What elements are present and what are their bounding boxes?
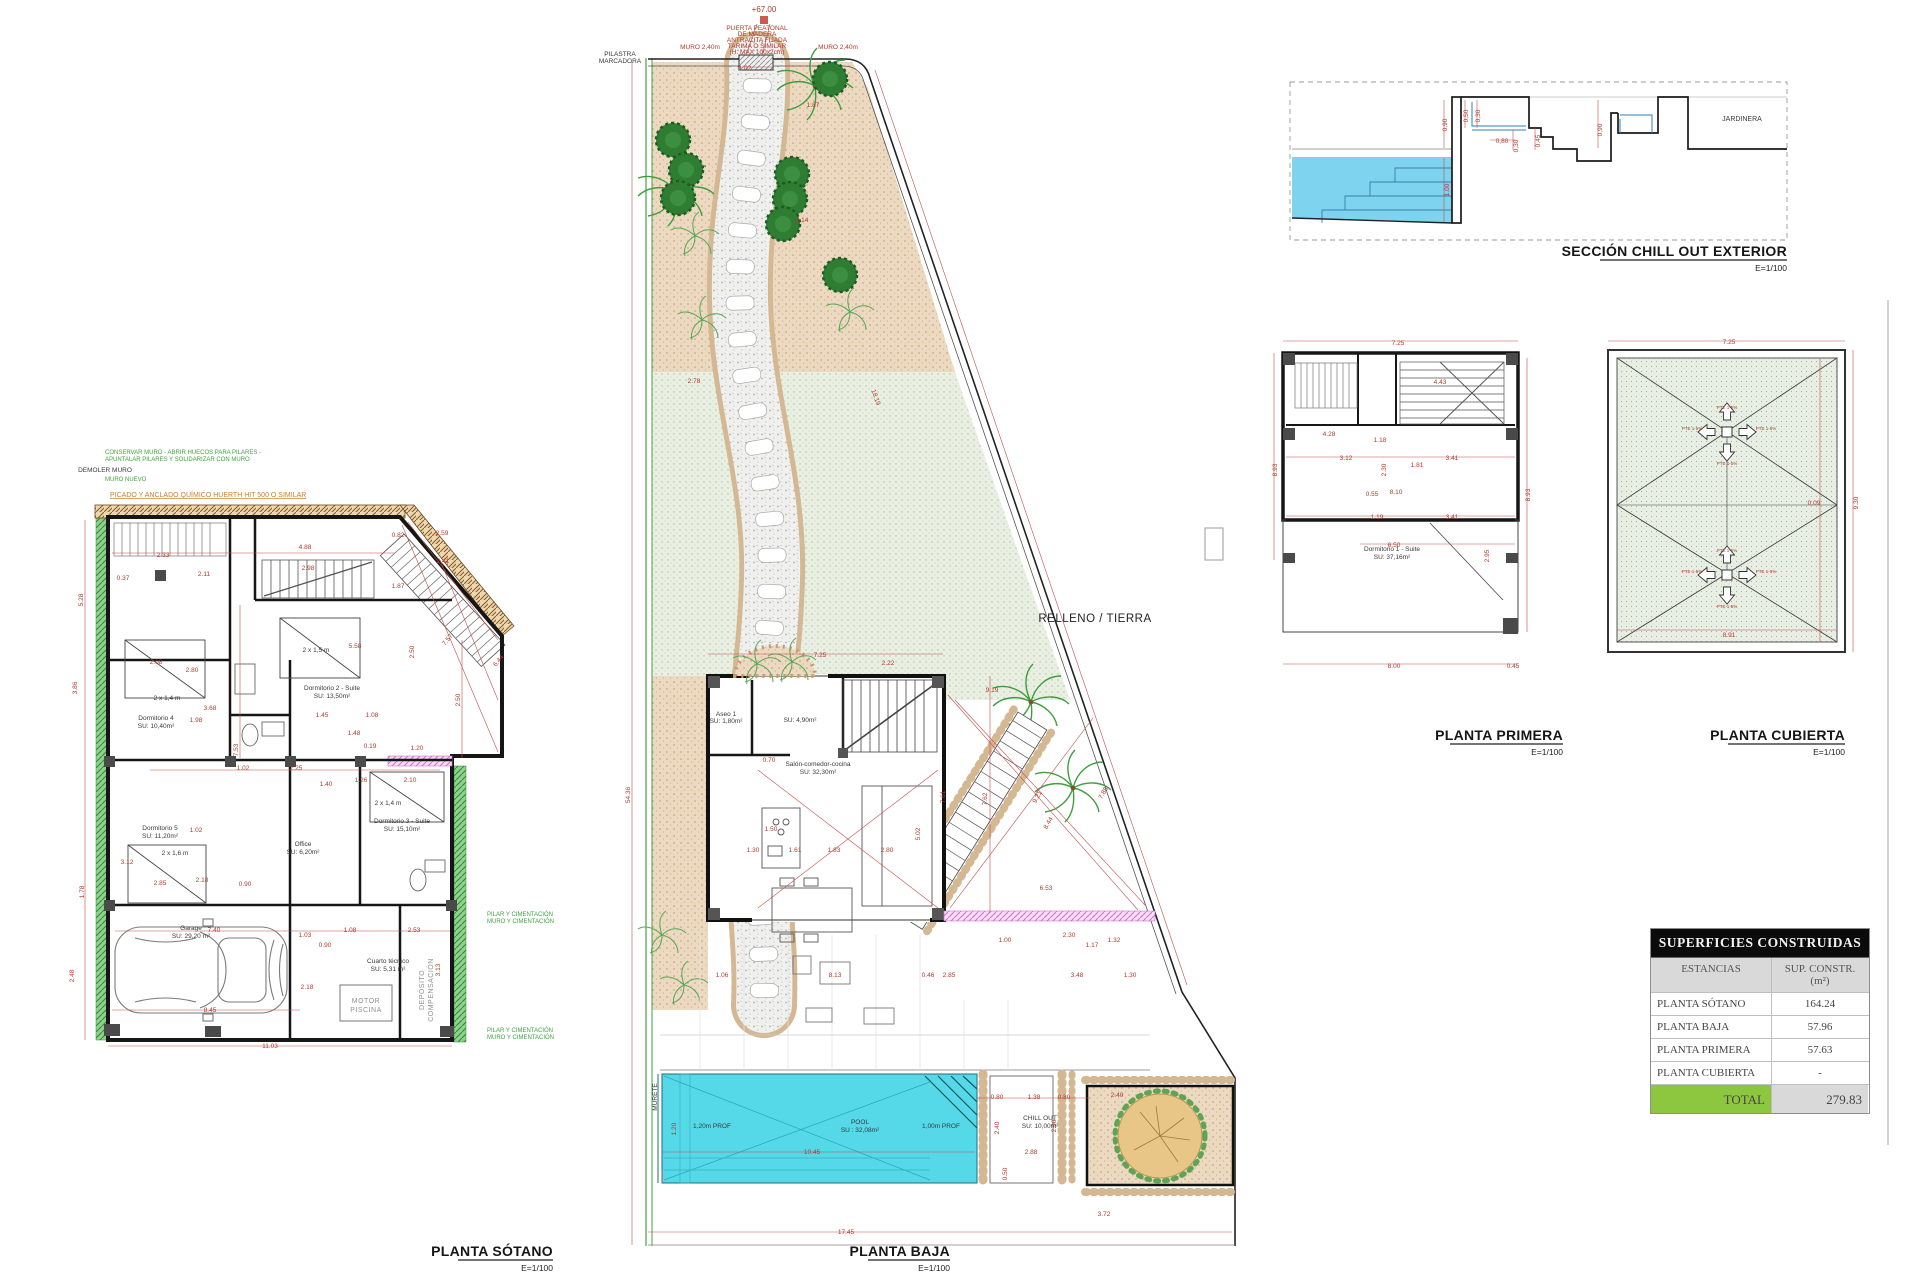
baja-dim: 2.88 — [1025, 1149, 1038, 1156]
baja-dim: 1.38 — [1028, 1094, 1041, 1101]
wardrobe-hatch — [114, 523, 226, 556]
sotano-annotation: PILAR Y CIMENTACIÓN — [487, 1027, 553, 1034]
sotano-dim: 2.48 — [69, 969, 76, 982]
baja-label: (H. MAX 100x2cm) — [730, 49, 785, 56]
shrub-8 — [813, 62, 847, 96]
baja-label: MARCADORA — [599, 58, 642, 65]
sotano-dim: 1.02 — [237, 765, 250, 772]
baja-label: SU: 4,90m² — [784, 717, 818, 724]
sotano-scale: E=1/100 — [521, 1263, 553, 1273]
sotano-dim: 0.37 — [117, 575, 130, 582]
sotano-annotation: MURO Y CIMENTACIÓN — [487, 1034, 554, 1041]
table-row: PLANTA BAJA 57.96 — [1651, 1016, 1869, 1039]
baja-dim: 1.30 — [1124, 972, 1137, 979]
sotano-dim: 1.87 — [392, 583, 405, 590]
baja-dim: 5.02 — [915, 827, 922, 840]
sotano-dim: 1.08 — [366, 712, 379, 719]
sotano-annotation: MURO Y CIMENTACIÓN — [487, 918, 554, 925]
primera-stair — [1400, 362, 1504, 424]
sotano-dim: 5.28 — [78, 593, 85, 606]
primera-dim: 2.30 — [1381, 463, 1388, 476]
total-value: 279.83 — [1772, 1085, 1868, 1113]
primera-label: Dormitorio 1 - Suite — [1364, 546, 1420, 553]
sotano-annotation: APUNTALAR PILARES Y SOLIDARIZAR CON MURO — [105, 457, 250, 463]
baja-dim: 1.20 — [671, 1122, 678, 1135]
baja-dim: 1.83 — [828, 847, 841, 854]
section-chillout: JARDINERA 0,900,500,300,800,300,451,000,… — [1290, 82, 1787, 273]
cubierta-pte-label: PTE 1-5% — [1756, 426, 1777, 431]
cubierta-pte-label: PTE 1-5% — [1717, 604, 1738, 609]
baja-dim: 4.14 — [796, 217, 809, 224]
baja-title: PLANTA BAJA — [849, 1243, 950, 1259]
sotano-annotation: DEMOLER MURO — [78, 467, 132, 474]
sotano-label: MOTOR — [352, 998, 380, 1005]
baja-dim: 1.06 — [716, 972, 729, 979]
baja-dim: 0.80 — [1058, 1094, 1071, 1101]
sotano-dim: 7.53 — [233, 743, 240, 756]
sotano-dim: 0.90 — [239, 881, 252, 888]
sotano-dim: 2.11 — [198, 571, 211, 578]
cubierta-dim: 0.09 — [1808, 500, 1821, 507]
section-benches — [1472, 102, 1652, 133]
baja-label: SU : 32,08m² — [841, 1127, 880, 1134]
sotano-dim: 1.02 — [190, 827, 203, 834]
sotano-dim: 2.08 — [150, 659, 163, 666]
sotano-dim: 3.12 — [121, 859, 134, 866]
primera-dim: 8.00 — [1388, 663, 1401, 670]
baja-label: MURETE — [652, 1083, 659, 1111]
sotano-stair — [262, 560, 374, 598]
sotano-label: 2 x 1,5 m — [303, 647, 330, 654]
table-header-row: ESTANCIAS SUP. CONSTR. (m²) — [1651, 958, 1869, 993]
baja-dim: 1.17 — [1086, 942, 1099, 949]
baja-dim: 2.80 — [881, 847, 894, 854]
cubierta-dim: 9.30 — [1853, 496, 1860, 509]
sotano-dim: 0.90 — [319, 942, 332, 949]
baja-dim: 1.87 — [807, 102, 820, 109]
stepping-stone — [758, 548, 786, 563]
sotano-label: Dormitorio 2 - Suite — [304, 685, 360, 692]
sotano-dim: 1.48 — [348, 730, 361, 737]
sotano-dim: 2.25 — [290, 765, 303, 772]
col-estancias: ESTANCIAS — [1651, 958, 1772, 992]
sotano-dim: 1.78 — [79, 885, 86, 898]
sotano-dim: 3.86 — [72, 681, 79, 694]
sotano-dim: 2.50 — [409, 645, 416, 658]
total-label: TOTAL — [1651, 1085, 1772, 1113]
baja-dim: 17.45 — [838, 1229, 855, 1236]
drawing-sheet: 2.330.372.115.284.882.981.872.417.572.50… — [0, 0, 1920, 1280]
sotano-dim: 1.03 — [299, 932, 312, 939]
primera-dim: 8.10 — [1390, 489, 1403, 496]
sotano-label: DEPÓSITO — [417, 970, 426, 1010]
sotano-dim: 0.19 — [364, 743, 377, 750]
baja-dim: 1.61 — [789, 847, 802, 854]
plan-primera: 7.254.434.283.123.411.182.301.810.558.10… — [1272, 340, 1563, 757]
sotano-dim: 2.18 — [196, 877, 209, 884]
section-dim: 0,45 — [1535, 134, 1542, 147]
sotano-dim: 8.45 — [204, 1007, 217, 1014]
row-value: - — [1772, 1062, 1868, 1084]
cubierta-pte-label: PTE 1-5% — [1756, 569, 1777, 574]
roof-drain-1 — [1722, 427, 1732, 437]
sotano-label: SU: 29,20 m² — [172, 933, 211, 940]
baja-dim: 2.30 — [1063, 932, 1076, 939]
palm-4 — [1035, 750, 1111, 822]
stepping-stone — [755, 511, 784, 528]
sotano-label: COMPENSACIÓN — [426, 958, 435, 1022]
primera-dim: 1.18 — [1374, 437, 1387, 444]
stepping-stone — [757, 584, 786, 599]
primera-scale: E=1/100 — [1531, 747, 1563, 757]
baja-label: POOL — [851, 1119, 869, 1126]
section-dim: 0,50 — [1463, 109, 1470, 122]
table-row: PLANTA PRIMERA 57.63 — [1651, 1039, 1869, 1062]
row-name: PLANTA CUBIERTA — [1651, 1062, 1772, 1084]
baja-dim: MURO 2,40m — [818, 44, 858, 51]
sotano-label: SU: 15,10m² — [384, 826, 421, 833]
baja-dim: 2.40 — [994, 1121, 1001, 1134]
baja-dim: 0.70 — [763, 757, 776, 764]
sotano-label: SU: 10,40m² — [138, 723, 175, 730]
baja-dim: 54.36 — [625, 786, 632, 803]
baja-dim: 10.45 — [804, 1149, 821, 1156]
sotano-dim: 2.53 — [408, 927, 421, 934]
section-water — [1292, 157, 1452, 223]
relleno-label: RELLENO / TIERRA — [1038, 613, 1151, 625]
stepping-stone — [728, 331, 757, 348]
stepping-stone — [755, 620, 784, 636]
pink-strip-baja — [944, 911, 1155, 921]
shrub-7 — [823, 258, 857, 292]
shrub-3 — [661, 181, 695, 215]
baja-label: Aseo 1 — [716, 711, 737, 718]
baja-label: 1,00m PROF — [922, 1123, 960, 1130]
sotano-dim: 2.10 — [404, 777, 417, 784]
table-title: SUPERFICIES CONSTRUIDAS — [1651, 929, 1869, 958]
baja-dim: 3.72 — [1098, 1211, 1111, 1218]
terrace-furniture — [793, 956, 894, 1024]
sotano-dim: 2.80 — [186, 667, 199, 674]
cubierta-scale: E=1/100 — [1813, 747, 1845, 757]
sotano-dim: 2.85 — [154, 880, 167, 887]
section-dim: 0,30 — [1513, 139, 1520, 152]
sotano-label: Garage — [180, 925, 202, 932]
row-name: PLANTA SÓTANO — [1651, 993, 1772, 1015]
sotano-dim: 0.82 — [392, 532, 405, 539]
baja-dim: 2.85 — [943, 972, 956, 979]
row-value: 164.24 — [1772, 993, 1868, 1015]
baja-dim: 3.48 — [1071, 972, 1084, 979]
primera-dim: 3.12 — [1340, 455, 1353, 462]
baja-dim: 1.30 — [747, 847, 760, 854]
baja-dim: 9.19 — [986, 687, 999, 694]
baja-dim: 1.32 — [1108, 937, 1121, 944]
sotano-label: Dormitorio 3 - Suite — [374, 818, 430, 825]
primera-label: SU: 37,16m² — [1374, 554, 1411, 561]
architectural-drawing: 2.330.372.115.284.882.981.872.417.572.50… — [0, 0, 1920, 1280]
primera-dim: 7.25 — [1392, 340, 1405, 347]
sotano-annotation: CONSERVAR MURO - ABRIR HUECOS PARA PILAR… — [105, 450, 261, 456]
baja-label: SU: 1,80m² — [710, 718, 744, 725]
baja-dim: 2.22 — [882, 660, 895, 667]
superficies-table: SUPERFICIES CONSTRUIDAS ESTANCIAS SUP. C… — [1650, 928, 1870, 1114]
sotano-label: 2 x 1,4 m — [375, 800, 402, 807]
primera-dim: 4.28 — [1323, 431, 1336, 438]
cubierta-dim: 8.91 — [1723, 632, 1736, 639]
baja-dim: 8.13 — [829, 972, 842, 979]
baja-dim: 7.62 — [982, 792, 989, 805]
cubierta-pte-label: PTE 1-5% — [1717, 461, 1738, 466]
primera-title: PLANTA PRIMERA — [1435, 727, 1563, 743]
row-value: 57.63 — [1772, 1039, 1868, 1061]
baja-dim: 2.40 — [1111, 1092, 1124, 1099]
primera-dim: 2.95 — [1484, 549, 1491, 562]
baja-label: 1,20m PROF — [693, 1123, 731, 1130]
table-total-row: TOTAL 279.83 — [1651, 1085, 1869, 1113]
primera-dim: 8.93 — [1525, 488, 1532, 501]
section-dim: 0,30 — [1475, 109, 1482, 122]
sotano-dim: 1.26 — [355, 777, 368, 784]
sotano-dim: 11.03 — [262, 1043, 278, 1050]
sotano-label: Cuarto técnico — [367, 958, 409, 965]
sotano-title: PLANTA SÓTANO — [431, 1242, 553, 1259]
baja-dim: 0.80 — [991, 1094, 1004, 1101]
table-row: PLANTA SÓTANO 164.24 — [1651, 993, 1869, 1016]
primera-dim: 8.93 — [1272, 463, 1279, 476]
row-name: PLANTA PRIMERA — [1651, 1039, 1772, 1061]
sotano-label: 2 x 1,6 m — [162, 850, 189, 857]
sotano-dim: 3.13 — [435, 963, 442, 976]
sotano-label: Office — [295, 841, 312, 848]
sotano-dim: 1.45 — [316, 712, 329, 719]
primera-dim: 3.41 — [1446, 514, 1459, 521]
section-dim: 0,80 — [1496, 138, 1509, 145]
baja-dim: 7.61 — [940, 790, 947, 803]
legend-box — [1205, 528, 1223, 560]
primera-dim: 0.55 — [1366, 491, 1379, 498]
section-title: SECCIÓN CHILL OUT EXTERIOR — [1562, 242, 1787, 259]
baja-label: CHILL OUT — [1023, 1115, 1057, 1122]
primera-wardrobe — [1295, 363, 1357, 408]
level-marker — [760, 16, 768, 24]
sotano-label: 2 x 1,4 m — [154, 695, 181, 702]
tree-planter — [1087, 1086, 1233, 1185]
section-dim: 0,90 — [1442, 118, 1449, 131]
sotano-dim: 1.98 — [190, 717, 203, 724]
cubierta-pte-label: PTE 1-5% — [1682, 569, 1703, 574]
jardinera-label: JARDINERA — [1722, 116, 1762, 123]
sotano-label: SU: 13,50m² — [314, 693, 351, 700]
sotano-label: Dormitorio 5 — [142, 825, 178, 832]
cubierta-pte-label: PTE 1-5% — [1717, 548, 1738, 553]
stepping-stone — [726, 296, 754, 311]
cubierta-dim: 7.25 — [1723, 339, 1736, 346]
baja-scale: E=1/100 — [918, 1263, 950, 1273]
stepping-stone — [749, 947, 778, 962]
baja-dim: 1.02 — [739, 65, 752, 72]
sotano-label: Dormitorio 4 — [138, 715, 174, 722]
stepping-stone — [728, 222, 757, 238]
sotano-annotation: PILAR Y CIMENTACIÓN — [487, 911, 553, 918]
sotano-dim: 2.98 — [302, 565, 315, 572]
baja-dim: 1.00 — [999, 937, 1012, 944]
sotano-annotation: MURO NUEVO — [105, 477, 147, 483]
sotano-dim: 2.59 — [436, 530, 449, 537]
sotano-dim: 2.50 — [455, 693, 462, 706]
baja-label: PILASTRA — [604, 51, 636, 58]
primera-dim: 1.19 — [1371, 514, 1384, 521]
house — [708, 676, 944, 942]
sotano-dim: 1.20 — [411, 745, 424, 752]
baja-dim: 1.50 — [765, 826, 778, 833]
level-text: +67.00 — [752, 5, 777, 14]
baja-dim: 7.25 — [814, 652, 827, 659]
section-scale: E=1/100 — [1755, 263, 1787, 273]
roof-drain-2 — [1722, 570, 1732, 580]
stepping-stone — [741, 114, 770, 130]
baja-dim: 6.53 — [1040, 885, 1053, 892]
plan-baja — [638, 16, 1235, 1246]
baja-label: SU: 32,30m² — [800, 769, 837, 776]
primera-dim: 1.81 — [1411, 462, 1424, 469]
section-dim: 0,90 — [1597, 123, 1604, 136]
sotano-dim: 4.88 — [299, 544, 312, 551]
table-row: PLANTA CUBIERTA - — [1651, 1062, 1869, 1085]
primera-dim: 3.41 — [1446, 455, 1459, 462]
sotano-dim: 5.58 — [349, 643, 362, 650]
sotano-label: SU: 11,20m² — [142, 833, 179, 840]
baja-dim: 0.46 — [922, 972, 935, 979]
section-dim: 1,00 — [1444, 183, 1451, 196]
stepping-stone — [726, 259, 754, 274]
shrub-6 — [766, 207, 800, 241]
stepping-stone — [743, 79, 771, 94]
sotano-dim: 3.68 — [204, 705, 217, 712]
plan-cubierta: 7.259.300.098.91 PTE 1-5%PTE 1-5%PTE 1-5… — [1608, 339, 1860, 757]
baja-label: Salón-comedor-cocina — [785, 761, 850, 768]
primera-dim: 4.43 — [1434, 379, 1447, 386]
cubierta-title: PLANTA CUBIERTA — [1710, 727, 1845, 743]
sotano-dim: 1.40 — [320, 781, 333, 788]
primera-dim-lines — [1274, 341, 1527, 664]
sotano-dim: 2.41 — [437, 558, 450, 565]
row-value: 57.96 — [1772, 1016, 1868, 1038]
sotano-dim: 2.18 — [301, 984, 314, 991]
primera-dim: 0.45 — [1507, 663, 1520, 670]
sotano-annotation: PICADO Y ANCLADO QUÍMICO HUERTH HIT 500 … — [110, 490, 306, 499]
plan-sotano: 2.330.372.115.284.882.981.872.417.572.50… — [69, 450, 554, 1050]
row-name: PLANTA BAJA — [1651, 1016, 1772, 1038]
sotano-dim: 1.08 — [344, 927, 357, 934]
cubierta-pte-label: PTE 1-5% — [1682, 426, 1703, 431]
sotano-label: SU: 5,31 m² — [371, 966, 407, 973]
baja-dim: 0.50 — [1002, 1167, 1009, 1180]
col-sup-constr: SUP. CONSTR. (m²) — [1772, 958, 1868, 992]
stepping-stone — [750, 983, 778, 997]
baja-dim: 8.44 — [1043, 816, 1056, 831]
baja-dim: 2.78 — [688, 378, 701, 385]
cubierta-pte-label: PTE 1-5% — [1717, 405, 1738, 410]
sotano-label: SU: 6,20m² — [287, 849, 321, 856]
baja-dim: MURO 2,40m — [680, 44, 720, 51]
sotano-dim: 2.33 — [157, 552, 170, 559]
baja-label: SU: 10,00m² — [1022, 1123, 1059, 1130]
sotano-label: PISCINA — [350, 1007, 382, 1014]
